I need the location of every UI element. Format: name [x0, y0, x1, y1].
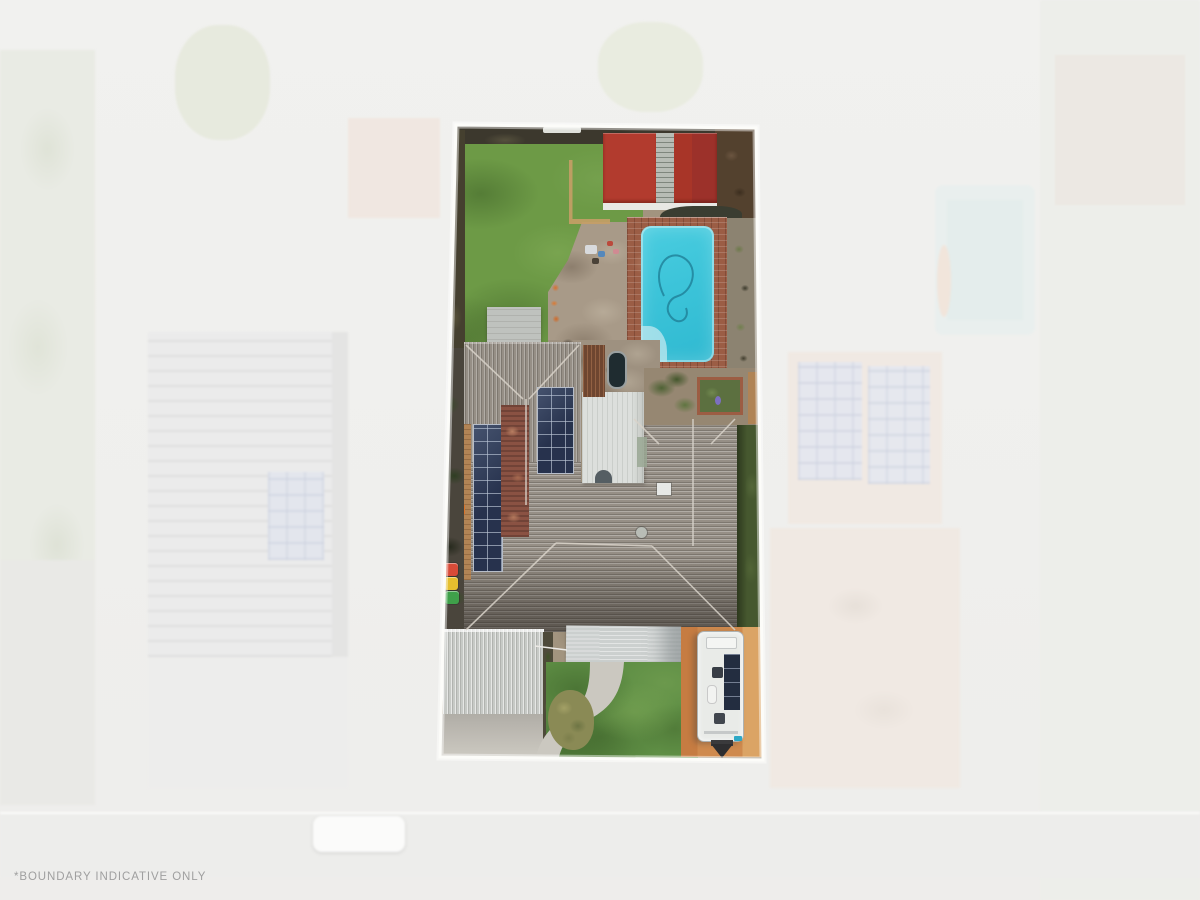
caravan-hatch-1	[712, 667, 723, 678]
solar-array-left	[473, 424, 503, 572]
purple-flowers	[715, 396, 721, 405]
spa	[607, 351, 627, 389]
orange-flowers	[549, 280, 562, 332]
tree-blob-topleft	[175, 25, 270, 140]
roof-skylight	[637, 437, 647, 467]
garden-shrub	[548, 690, 594, 750]
neighbour-pool-slide	[937, 245, 951, 317]
garage-roof	[443, 629, 544, 720]
terracotta-roof-section	[501, 405, 529, 537]
timber-edge	[748, 372, 757, 424]
bin-green	[445, 591, 459, 604]
carport-awning	[566, 625, 681, 664]
neighbour-solar-right-a	[798, 362, 862, 480]
neighbour-pool	[935, 185, 1035, 335]
caravan	[697, 631, 744, 742]
road	[0, 812, 1200, 878]
rear-garden-bed	[644, 368, 761, 425]
driveway	[441, 714, 546, 757]
furniture-item-dark	[592, 258, 599, 264]
caravan-teal-item	[734, 736, 742, 741]
caravan-vent	[707, 685, 717, 704]
caravan-hatch-2	[714, 713, 725, 724]
neighbour-roof-edge	[332, 332, 348, 657]
neighbour-patch-bottomleft	[0, 560, 95, 805]
planter-box	[700, 380, 740, 412]
outdoor-furniture	[582, 235, 627, 269]
neighbour-roof-left-lower	[148, 658, 348, 788]
wood-deck	[583, 345, 605, 397]
neighbour-solar-right-b	[868, 366, 930, 484]
neighbour-solar-left	[268, 472, 324, 560]
neighbour-patch-topright	[1055, 55, 1185, 205]
caravan-front-box	[706, 637, 737, 649]
garden-shed-pad	[487, 307, 541, 346]
furniture-chair-pink	[613, 249, 619, 254]
wheelie-bins	[444, 563, 460, 606]
bin-red	[444, 563, 458, 576]
roof-vent-round	[636, 527, 647, 538]
neighbour-patch-right-lower	[770, 528, 960, 788]
caravan-solar-panels	[724, 654, 740, 710]
neighbour-pool-water	[947, 200, 1023, 320]
neighbour-roof-orange-left	[348, 118, 440, 218]
right-lawn-strip	[737, 425, 762, 630]
roof-vent-square	[657, 483, 671, 495]
furniture-chair-blue	[598, 251, 605, 257]
furniture-chair-red	[607, 241, 613, 246]
top-fence-beam	[543, 127, 581, 133]
shed-skylight	[656, 133, 674, 203]
neighbour-roof-left	[148, 332, 348, 657]
red-shed	[603, 133, 717, 203]
tree-blob-top	[598, 22, 703, 112]
furniture-table	[585, 245, 597, 254]
right-boundary-strip	[727, 218, 757, 374]
disclaimer-text: *BOUNDARY INDICATIVE ONLY	[14, 871, 206, 883]
solar-array-upper	[537, 387, 574, 474]
caravan-rear-bar	[704, 731, 738, 734]
bin-yellow	[444, 577, 458, 590]
parked-car	[313, 816, 405, 852]
caravan-hitch	[711, 744, 733, 758]
patio-roof	[582, 392, 644, 483]
aerial-photo: *BOUNDARY INDICATIVE ONLY	[0, 0, 1200, 900]
neighbour-roof-right	[788, 352, 942, 524]
patio-roof-vent	[595, 470, 612, 483]
